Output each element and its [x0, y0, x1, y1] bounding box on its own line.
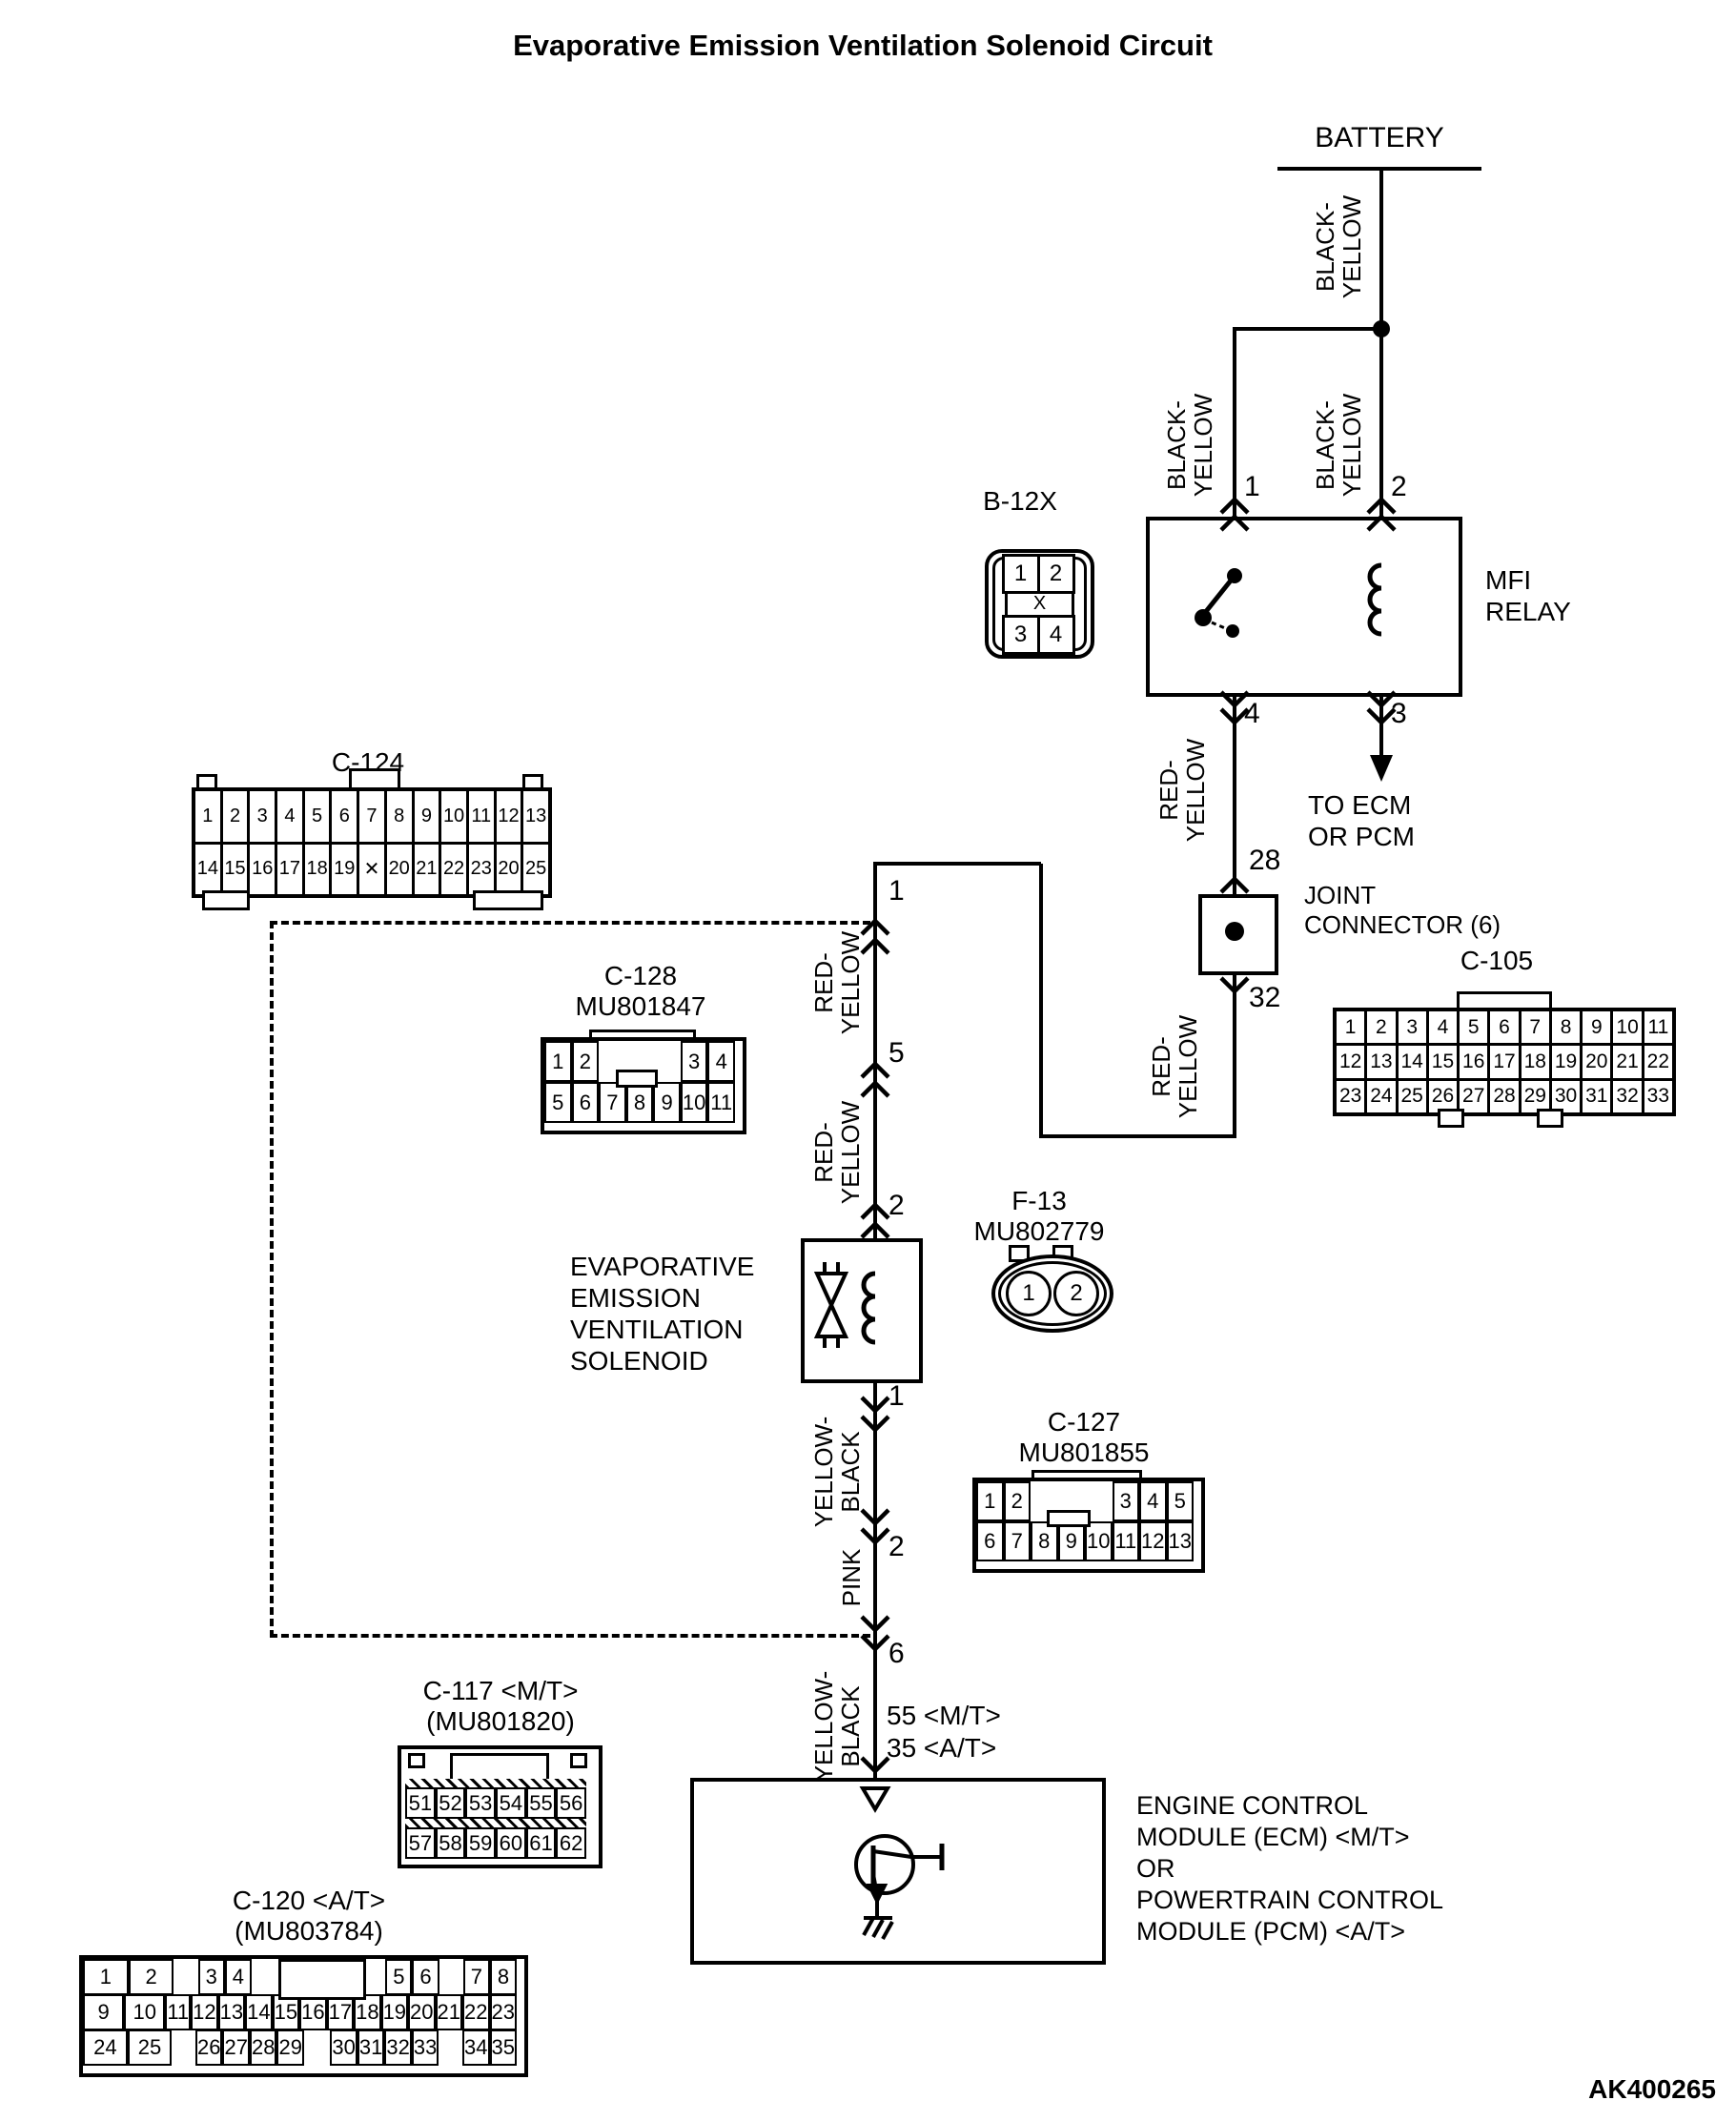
- pin-cell: 7: [1004, 1521, 1031, 1561]
- pin-cell: 10: [681, 1082, 708, 1123]
- pin-cell: 18: [305, 845, 330, 895]
- wiring-diagram-page: Evaporative Emission Ventilation Solenoi…: [0, 0, 1736, 2121]
- relay-pin-4: 4: [1244, 698, 1260, 730]
- spine-pin-6: 6: [888, 1638, 905, 1670]
- pin-cell: 10: [1085, 1521, 1113, 1561]
- pin-cell: 13: [1167, 1521, 1195, 1561]
- wire-joint-out: [1233, 968, 1236, 1138]
- pin-cell: 2: [1037, 554, 1075, 594]
- pin-cell: 59: [465, 1827, 496, 1859]
- page-title: Evaporative Emission Ventilation Solenoi…: [286, 29, 1440, 63]
- c127-mid-tab: [1047, 1510, 1091, 1527]
- spine-pin-2b: 2: [888, 1531, 905, 1563]
- wire-relay-out3: [1379, 689, 1383, 761]
- c128-row-bottom: 567891011: [544, 1082, 735, 1123]
- pin-cell: 57: [405, 1827, 436, 1859]
- wire-battery-stem: [1379, 167, 1383, 519]
- wire-color-label-red-yellow: RED-YELLOW: [1148, 962, 1201, 1172]
- pin-cell: 5: [544, 1082, 572, 1123]
- pin-cell: 12: [1139, 1521, 1167, 1561]
- pin-cell: 62: [556, 1827, 586, 1859]
- ecm-pin-mt: 55 <M/T>: [887, 1701, 1001, 1731]
- connector-c117-code: (MU801820): [400, 1706, 601, 1737]
- pin-cell: 29: [276, 2029, 303, 2066]
- pin-cell: 33: [412, 2029, 439, 2066]
- pin-cell: 19: [1552, 1046, 1580, 1077]
- pin-cell: 33: [1644, 1081, 1672, 1112]
- pin-cell: 27: [1460, 1081, 1487, 1112]
- pin-cell: 3: [1399, 1011, 1426, 1043]
- pin-cell: 1: [1337, 1011, 1364, 1043]
- pin-cell: 4: [277, 791, 302, 842]
- pin-cell: 14: [1399, 1046, 1426, 1077]
- relay-pin-2: 2: [1391, 471, 1407, 503]
- c127-row-bottom: 678910111213: [976, 1521, 1194, 1561]
- pin-cell: 18: [1522, 1046, 1549, 1077]
- pin-cell: 1: [544, 1041, 572, 1082]
- pin-cell: 61: [526, 1827, 557, 1859]
- c124-bottom-tab: [473, 890, 543, 910]
- pin-cell: 20: [408, 1994, 435, 2030]
- pin-cell: 6: [976, 1521, 1004, 1561]
- pin-cell: 23: [469, 845, 494, 895]
- empty-slot: [172, 2029, 195, 2066]
- pin-cell: 2: [572, 1041, 600, 1082]
- c124-bottom-tab: [202, 890, 250, 910]
- pin-cell: 5: [1460, 1011, 1487, 1043]
- pin-cell: 2: [223, 791, 248, 842]
- pin-cell: 3: [250, 791, 275, 842]
- connector-c120-code: (MU803784): [190, 1916, 428, 1947]
- pin-cell: 24: [83, 2029, 128, 2066]
- pin-cell: 12: [497, 791, 521, 842]
- pin-cell: 20: [1583, 1046, 1610, 1077]
- mfi-relay-label: MFI RELAY: [1485, 564, 1571, 627]
- pin-cell: 25: [523, 845, 548, 895]
- pin-cell: 53: [465, 1787, 496, 1819]
- pin-cell: 32: [384, 2029, 411, 2066]
- mfi-relay-box: [1146, 517, 1462, 697]
- ecm-pin-at: 35 <A/T>: [887, 1733, 996, 1764]
- c117-row-2: 575859606162: [405, 1827, 586, 1859]
- pin-cell: 24: [1367, 1081, 1395, 1112]
- pin-cell: 1: [1002, 554, 1040, 594]
- pin-cell: 4: [707, 1041, 735, 1082]
- wire-jog-bottom: [1039, 1134, 1236, 1138]
- pin-cell: 3: [681, 1041, 708, 1082]
- wire-spine-lower: [873, 1374, 877, 1847]
- connector-c128-label: C-128: [562, 961, 719, 991]
- solenoid-box: [801, 1238, 923, 1383]
- connector-c127-code: MU801855: [987, 1438, 1181, 1468]
- pin-cell: 3: [1113, 1481, 1140, 1521]
- connector-c117-label: C-117 <M/T>: [400, 1676, 601, 1706]
- pin-cell: ✕: [359, 845, 384, 895]
- pin-cell: 23: [490, 1994, 517, 2030]
- ecm-box: [690, 1778, 1106, 1965]
- pin-cell: 4: [1037, 615, 1075, 655]
- pin-cell: 1: [1006, 1271, 1052, 1316]
- connector-b12x-face: 12 X 34: [992, 557, 1087, 651]
- pin-cell: 15: [223, 845, 248, 895]
- pin-cell: 10: [124, 1994, 165, 2030]
- battery-label: BATTERY: [1268, 122, 1491, 154]
- c105-bottom-tab: [1537, 1109, 1563, 1128]
- wire-color-label-red-yellow: RED-YELLOW: [810, 1048, 864, 1257]
- solenoid-label: EVAPORATIVE EMISSION VENTILATION SOLENOI…: [570, 1251, 754, 1377]
- pin-cell: 34: [462, 2029, 489, 2066]
- connector-f13-code: MU802779: [953, 1216, 1125, 1247]
- pin-cell: 58: [436, 1827, 466, 1859]
- pin-cell: 35: [490, 2029, 517, 2066]
- pin-cell: 2: [1004, 1481, 1031, 1521]
- pin-cell: 51: [405, 1787, 436, 1819]
- c105-row-1: 1234567891011: [1337, 1011, 1672, 1043]
- pin-cell: 60: [496, 1827, 526, 1859]
- pin-cell: 9: [415, 791, 439, 842]
- connector-f13: 12: [991, 1254, 1113, 1333]
- pin-cell: 10: [1613, 1011, 1641, 1043]
- pin-cell: 16: [1460, 1046, 1487, 1077]
- connector-c127-label: C-127: [1006, 1407, 1162, 1438]
- pin-cell: 11: [469, 791, 494, 842]
- c124-row-2: 141516171819✕202122232025: [195, 845, 548, 895]
- pin-cell: 56: [556, 1787, 586, 1819]
- joint-pin-28: 28: [1249, 845, 1280, 877]
- pin-cell: 9: [653, 1082, 681, 1123]
- ecm-label: ENGINE CONTROL MODULE (ECM) <M/T> OR POW…: [1136, 1790, 1443, 1948]
- spine-pin-2: 2: [888, 1190, 905, 1222]
- pin-cell: 7: [1522, 1011, 1549, 1043]
- pin-cell: 11: [1113, 1521, 1140, 1561]
- pin-cell: 19: [381, 1994, 408, 2030]
- pin-cell: 14: [195, 845, 220, 895]
- connector-b12x-label: B-12X: [953, 486, 1087, 517]
- pin-cell: 12: [1337, 1046, 1364, 1077]
- b12x-row-top: 12: [1003, 554, 1076, 594]
- pin-cell: 13: [523, 791, 548, 842]
- pin-cell: 19: [332, 845, 357, 895]
- wire-branch-vertical: [1233, 329, 1236, 519]
- pin-cell: 4: [1139, 1481, 1167, 1521]
- pin-cell: 21: [415, 845, 439, 895]
- pin-cell: 55: [526, 1787, 557, 1819]
- c124-row-1: 12345678910111213: [195, 791, 548, 842]
- empty-slot: [439, 1959, 463, 1995]
- spine-pin-1: 1: [888, 875, 905, 908]
- pin-cell: 21: [1613, 1046, 1641, 1077]
- joint-pin-32: 32: [1249, 982, 1280, 1014]
- pin-cell: 7: [599, 1082, 626, 1123]
- connector-c105: 1234567891011 1213141516171819202122 232…: [1333, 1008, 1676, 1116]
- c105-row-2: 1213141516171819202122: [1337, 1046, 1672, 1077]
- spine-pin-5: 5: [888, 1037, 905, 1070]
- wire-color-label-red-yellow: RED-YELLOW: [1155, 685, 1209, 895]
- relay-pin-1: 1: [1244, 471, 1260, 503]
- c128-mid-tab: [616, 1070, 658, 1088]
- pin-cell: 8: [387, 791, 412, 842]
- pin-cell: 4: [1429, 1011, 1457, 1043]
- pin-cell: 7: [359, 791, 384, 842]
- connector-b12x: 12 X 34: [985, 549, 1094, 659]
- relay-pin-3: 3: [1391, 698, 1407, 730]
- connector-c128-code: MU801847: [543, 991, 738, 1022]
- c120-row-3: 242526272829303132333435: [83, 2029, 517, 2066]
- wire-jog-top: [873, 862, 1041, 866]
- c117-hatch-strip: [405, 1819, 586, 1827]
- pin-cell: 10: [441, 791, 466, 842]
- connector-c120-label: C-120 <A/T>: [190, 1886, 428, 1916]
- pin-cell: 16: [250, 845, 275, 895]
- pin-cell: 28: [250, 2029, 276, 2066]
- to-ecm-label: TO ECM OR PCM: [1308, 789, 1415, 852]
- pin-cell: 12: [191, 1994, 217, 2030]
- connector-f13-label: F-13: [972, 1186, 1106, 1216]
- pin-cell: 2: [1053, 1271, 1099, 1316]
- pin-cell: 6: [412, 1959, 439, 1995]
- c117-corner-tab: [408, 1753, 425, 1768]
- joint-connector-box: [1198, 894, 1278, 975]
- pin-cell: 30: [1552, 1081, 1580, 1112]
- c117-hatch-strip: [405, 1779, 586, 1787]
- pin-cell: 15: [1429, 1046, 1457, 1077]
- empty-slot: [252, 1959, 278, 1995]
- wire-jog-vertical: [1039, 864, 1043, 1138]
- pin-cell: 6: [572, 1082, 600, 1123]
- pin-cell: 8: [1031, 1521, 1058, 1561]
- pin-cell: 17: [277, 845, 302, 895]
- pin-cell: 1: [83, 1959, 129, 1995]
- pin-cell: 5: [385, 1959, 412, 1995]
- empty-slot: [439, 2029, 462, 2066]
- pin-cell: 26: [1429, 1081, 1457, 1112]
- empty-slot: [304, 2029, 330, 2066]
- pin-cell: 1: [976, 1481, 1004, 1521]
- pin-cell: 21: [436, 1994, 462, 2030]
- wire-spine-upper: [873, 862, 877, 1240]
- b12x-row-bottom: 34: [1003, 615, 1076, 655]
- pin-cell: 25: [1399, 1081, 1426, 1112]
- pin-cell: 11: [1644, 1011, 1672, 1043]
- pin-cell: 4: [225, 1959, 252, 1995]
- pin-cell: 22: [462, 1994, 489, 2030]
- pin-cell: 9: [83, 1994, 124, 2030]
- pin-cell: 8: [626, 1082, 654, 1123]
- pin-cell: 20: [497, 845, 521, 895]
- pin-cell: 52: [436, 1787, 466, 1819]
- pin-cell: 11: [165, 1994, 191, 2030]
- pin-cell: 31: [357, 2029, 384, 2066]
- pin-cell: 29: [1522, 1081, 1549, 1112]
- c105-bottom-tab: [1438, 1109, 1464, 1128]
- pin-cell: 8: [490, 1959, 517, 1995]
- pin-cell: 25: [128, 2029, 173, 2066]
- pin-cell: 14: [245, 1994, 272, 2030]
- pin-cell: 30: [330, 2029, 357, 2066]
- c117-row-1: 515253545556: [405, 1787, 586, 1819]
- pin-cell: 28: [1490, 1081, 1518, 1112]
- pin-cell: 2: [129, 1959, 174, 1995]
- pin-cell: 54: [496, 1787, 526, 1819]
- pin-cell: 3: [198, 1959, 225, 1995]
- pin-cell: 22: [441, 845, 466, 895]
- c117-corner-tab: [570, 1753, 587, 1768]
- pin-cell: 32: [1613, 1081, 1641, 1112]
- pin-cell: 27: [222, 2029, 249, 2066]
- f13-cavities: 12: [998, 1261, 1107, 1326]
- pin-cell: 31: [1583, 1081, 1610, 1112]
- pin-cell: 13: [1367, 1046, 1395, 1077]
- pin-cell: 5: [305, 791, 330, 842]
- connector-c105-label: C-105: [1420, 946, 1573, 976]
- pin-cell: 9: [1058, 1521, 1086, 1561]
- pin-cell: 20: [387, 845, 412, 895]
- pin-cell: 3: [1002, 615, 1040, 655]
- wire-relay-out4: [1233, 689, 1236, 894]
- c120-keyway-box: [278, 1959, 366, 2000]
- pin-cell: 6: [1490, 1011, 1518, 1043]
- diagram-code: AK400265: [1521, 2074, 1716, 2105]
- pin-cell: 13: [218, 1994, 245, 2030]
- pin-cell: 23: [1337, 1081, 1364, 1112]
- solenoid-pin-1: 1: [888, 1380, 905, 1413]
- pin-cell: 1: [195, 791, 220, 842]
- pin-cell: 5: [1167, 1481, 1195, 1521]
- b12x-cross-bar: X: [1005, 591, 1074, 618]
- joint-connector-label: JOINT CONNECTOR (6): [1304, 881, 1501, 940]
- pin-cell: 17: [1490, 1046, 1518, 1077]
- pin-cell: 11: [707, 1082, 735, 1123]
- empty-slot: [174, 1959, 197, 1995]
- pin-cell: 6: [332, 791, 357, 842]
- pin-cell: 7: [463, 1959, 490, 1995]
- pin-cell: 8: [1552, 1011, 1580, 1043]
- wire-color-label-black-yellow: BLACK-YELLOW: [1312, 142, 1365, 352]
- c105-row-3: 2324252627282930313233: [1337, 1081, 1672, 1112]
- pin-cell: 26: [195, 2029, 222, 2066]
- pin-cell: 22: [1644, 1046, 1672, 1077]
- connector-c124: 12345678910111213 141516171819✕202122232…: [192, 787, 552, 898]
- pin-cell: 9: [1583, 1011, 1610, 1043]
- pin-cell: 2: [1367, 1011, 1395, 1043]
